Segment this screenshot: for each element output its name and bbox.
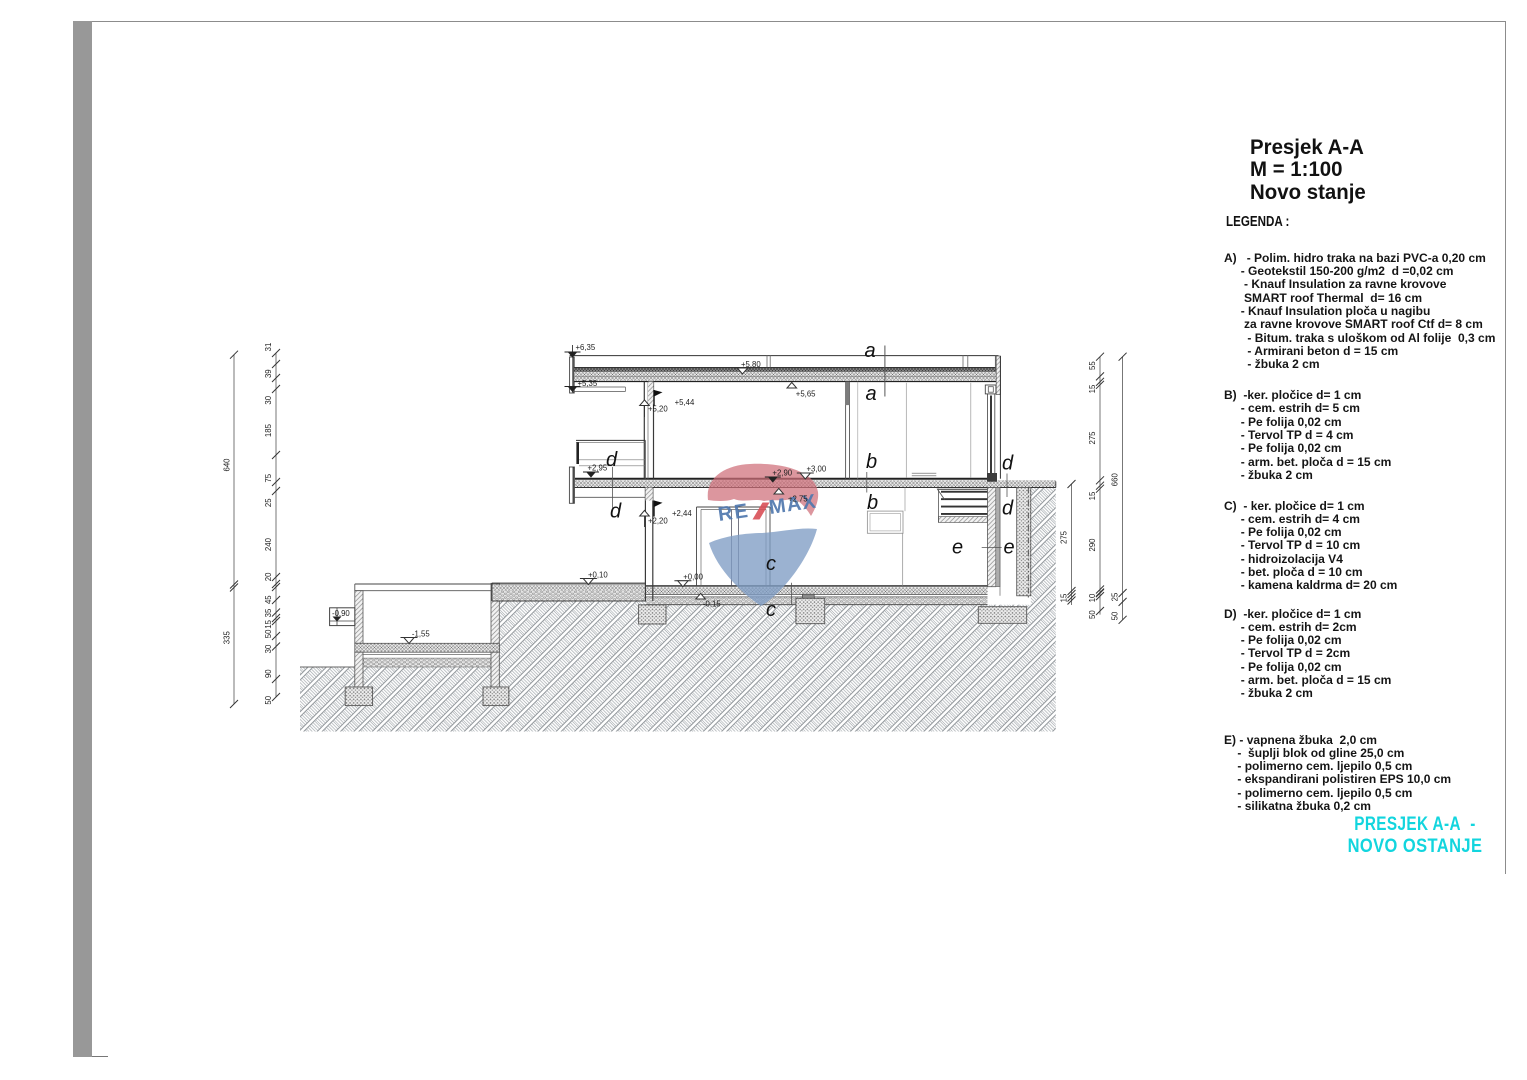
- svg-text:+6,35: +6,35: [576, 343, 596, 352]
- svg-text:a: a: [866, 383, 877, 405]
- svg-text:25: 25: [264, 498, 273, 507]
- svg-text:20: 20: [264, 572, 273, 581]
- svg-text:15: 15: [264, 619, 273, 628]
- svg-text:+5,65: +5,65: [796, 389, 816, 398]
- svg-text:d: d: [1002, 453, 1014, 475]
- svg-text:185: 185: [264, 423, 273, 437]
- svg-text:335: 335: [223, 631, 232, 645]
- svg-text:39: 39: [264, 369, 273, 378]
- svg-text:d: d: [606, 449, 618, 471]
- svg-text:660: 660: [1111, 473, 1120, 487]
- svg-text:+2,95: +2,95: [588, 463, 608, 472]
- svg-text:b: b: [867, 492, 878, 514]
- svg-text:30: 30: [264, 644, 273, 653]
- svg-text:c: c: [766, 599, 776, 621]
- svg-text:+5,35: +5,35: [578, 379, 598, 388]
- svg-text:d: d: [1002, 498, 1014, 520]
- svg-text:50: 50: [264, 695, 273, 704]
- svg-text:50: 50: [1111, 611, 1120, 620]
- svg-text:55: 55: [1088, 361, 1097, 370]
- svg-text:275: 275: [1060, 530, 1069, 544]
- svg-text:e: e: [1004, 537, 1015, 559]
- svg-text:35: 35: [264, 608, 273, 617]
- svg-text:+5,20: +5,20: [648, 404, 668, 413]
- svg-text:b: b: [866, 451, 877, 473]
- svg-text:275: 275: [1088, 431, 1097, 445]
- svg-text:31: 31: [264, 343, 273, 352]
- svg-text:45: 45: [264, 595, 273, 604]
- svg-text:75: 75: [264, 473, 273, 482]
- svg-text:c: c: [766, 553, 776, 575]
- svg-text:640: 640: [223, 458, 232, 472]
- svg-text:+3,00: +3,00: [807, 464, 827, 473]
- svg-text:15: 15: [1088, 384, 1097, 393]
- svg-text:15: 15: [1088, 491, 1097, 500]
- svg-text:RE: RE: [717, 500, 752, 526]
- svg-text:a: a: [865, 340, 876, 362]
- svg-text:50: 50: [264, 629, 273, 638]
- svg-text:+2,90: +2,90: [772, 468, 792, 477]
- svg-text:+5,44: +5,44: [675, 398, 695, 407]
- svg-text:e: e: [952, 537, 963, 559]
- svg-text:10: 10: [1088, 593, 1097, 602]
- svg-text:d: d: [610, 501, 622, 523]
- svg-text:90: 90: [264, 669, 273, 678]
- svg-text:+0,00: +0,00: [683, 572, 703, 581]
- svg-text:+2,75: +2,75: [788, 494, 808, 503]
- svg-text:-0,15: -0,15: [703, 599, 721, 608]
- svg-text:15: 15: [1060, 593, 1069, 602]
- svg-text:290: 290: [1088, 538, 1097, 552]
- svg-text:50: 50: [1088, 610, 1097, 619]
- svg-text:25: 25: [1111, 592, 1120, 601]
- svg-text:30: 30: [264, 395, 273, 404]
- svg-text:240: 240: [264, 537, 273, 551]
- svg-text:+2,44: +2,44: [672, 509, 692, 518]
- svg-text:+2,20: +2,20: [648, 516, 668, 525]
